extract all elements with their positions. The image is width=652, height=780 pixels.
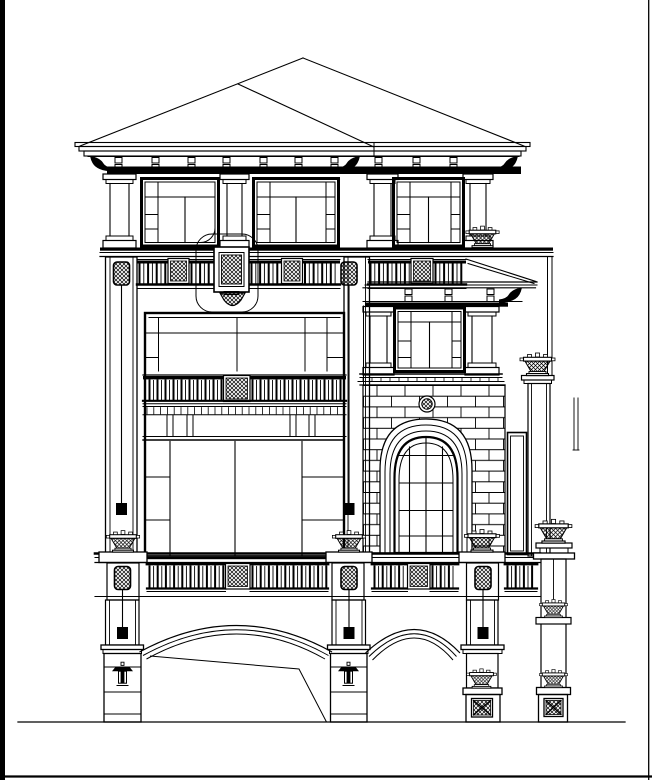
elevation-drawing [0, 0, 652, 780]
main-cornice-frieze [88, 156, 521, 174]
sheet-border [0, 0, 652, 780]
balustrade-lower [95, 563, 540, 639]
urn-planter [467, 669, 497, 688]
urn-planter [332, 531, 365, 552]
lower-balcony-slab [95, 552, 540, 563]
urn-planter [106, 531, 139, 552]
balustrade-upper [137, 259, 466, 289]
third-floor-window-bay [143, 313, 346, 558]
drawing-sheet [0, 0, 652, 780]
urn-planter [520, 353, 555, 376]
hip-roof [75, 58, 530, 156]
upper-floor-columns-windows [103, 174, 493, 248]
urn-planter [540, 600, 568, 618]
right-tower [358, 259, 554, 556]
urn-planter [540, 670, 568, 688]
urn-planter [466, 226, 499, 247]
urn-planter [535, 519, 572, 543]
